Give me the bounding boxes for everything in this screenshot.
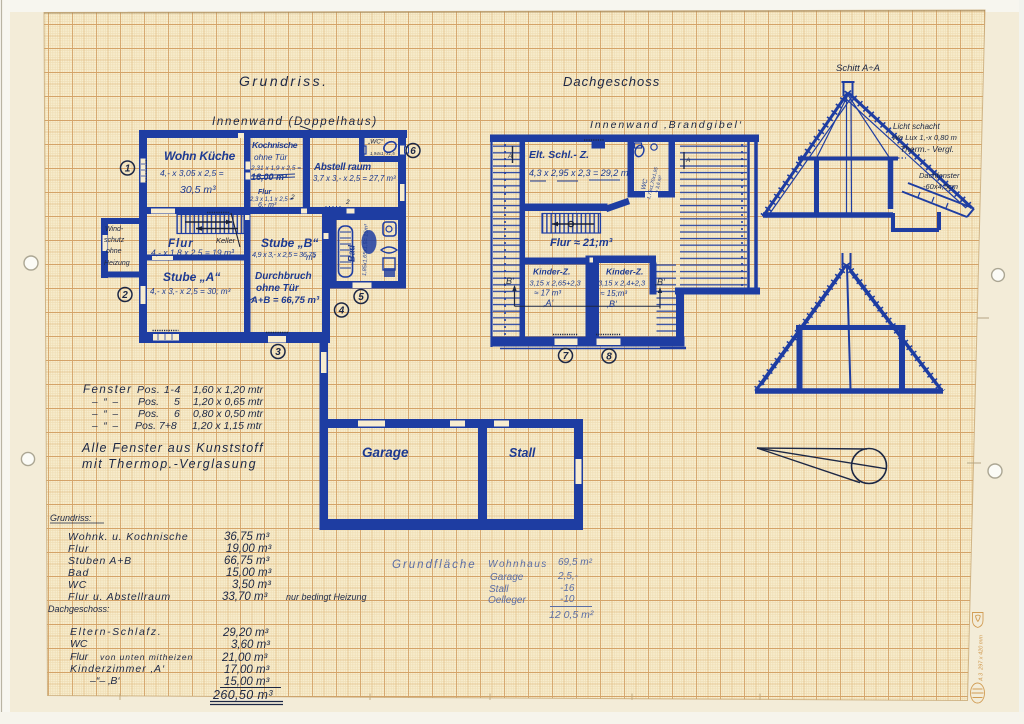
svg-text:Oelleger: Oelleger <box>488 595 526 606</box>
svg-text:4,- x 3,05 x 2,5 =: 4,- x 3,05 x 2,5 = <box>160 168 224 178</box>
svg-text:12 0,5 m²: 12 0,5 m² <box>549 609 594 621</box>
svg-text:Alle Fenster aus Kunststoff: Alle Fenster aus Kunststoff <box>81 441 264 455</box>
svg-text:ohne Tür: ohne Tür <box>256 283 300 294</box>
svg-text:15,00 m³: 15,00 m³ <box>226 567 273 579</box>
svg-text:66,75 m³: 66,75 m³ <box>224 555 271 567</box>
svg-text:17,00 m³: 17,00 m³ <box>224 664 271 676</box>
svg-text:Durchbruch: Durchbruch <box>255 271 312 282</box>
svg-text:Keller: Keller <box>216 236 236 245</box>
svg-text:69,5 m²: 69,5 m² <box>558 557 593 568</box>
svg-text:5: 5 <box>358 292 364 303</box>
svg-text:3,50 m³: 3,50 m³ <box>232 579 272 591</box>
svg-text:1,94x1,-x1,5: 1,94x1,-x1,5 <box>370 151 395 156</box>
svg-text:A: A <box>685 157 690 164</box>
svg-text:2: 2 <box>121 290 128 301</box>
svg-text:Garage: Garage <box>362 445 409 460</box>
svg-text:-10: -10 <box>560 594 575 605</box>
svg-text:‚A‘: ‚A‘ <box>543 298 555 308</box>
svg-text:Wind-: Wind- <box>105 226 124 233</box>
svg-text:Wohn Küche: Wohn Küche <box>164 149 236 163</box>
svg-text:‚B‘: ‚B‘ <box>606 299 618 309</box>
svg-text:–“– ‚B‘: –“– ‚B‘ <box>89 675 120 687</box>
svg-text:33,70 m³: 33,70 m³ <box>222 591 269 603</box>
svg-text:7: 7 <box>563 351 569 362</box>
svg-text:A 3 297 x 420 mm: A 3 297 x 420 mm <box>979 635 985 682</box>
svg-text:We Lux 1,-x 0,80 m: We Lux 1,-x 0,80 m <box>892 133 957 142</box>
svg-text:Therm.- Vergl.: Therm.- Vergl. <box>900 144 954 154</box>
svg-text:6,- m³: 6,- m³ <box>258 202 277 209</box>
svg-text:Stuben A+B: Stuben A+B <box>68 555 132 567</box>
svg-text:Eltern-Schlafz.: Eltern-Schlafz. <box>70 626 162 638</box>
svg-text:Kinder-Z.: Kinder-Z. <box>533 267 570 277</box>
svg-text:Kinder-Z.: Kinder-Z. <box>606 267 643 277</box>
svg-text:260,50 m³: 260,50 m³ <box>212 688 273 702</box>
svg-text:Dachgeschoss: Dachgeschoss <box>563 74 660 89</box>
svg-text:WC: WC <box>70 638 88 650</box>
svg-text:Grundriss.: Grundriss. <box>239 73 329 89</box>
svg-text:WC: WC <box>68 579 87 591</box>
svg-text:Grundriss:: Grundriss: <box>50 513 92 523</box>
svg-text:Pos. 7+8: Pos. 7+8 <box>135 420 177 432</box>
svg-text:Pos.: Pos. <box>138 408 159 420</box>
svg-text:Flur: Flur <box>70 651 89 663</box>
svg-text:Abstell raum: Abstell raum <box>313 162 371 173</box>
svg-text:3: 3 <box>275 347 281 358</box>
svg-text:Grundfläche: Grundfläche <box>392 559 477 571</box>
svg-text:Flur ≈ 21;m³: Flur ≈ 21;m³ <box>550 237 613 249</box>
svg-text:– “ –: – “ – <box>91 397 120 408</box>
svg-text:Innenwand ‚Brandgibel‘: Innenwand ‚Brandgibel‘ <box>590 119 743 131</box>
svg-text:‚B‘: ‚B‘ <box>654 277 666 287</box>
svg-text:1: 1 <box>125 163 131 174</box>
svg-text:-60x4,5cm: -60x4,5cm <box>923 182 958 191</box>
svg-text:schutz: schutz <box>104 237 125 244</box>
svg-text:Bad: Bad <box>347 244 357 262</box>
svg-text:Stube „B“: Stube „B“ <box>261 236 318 250</box>
svg-text:Schitt A÷A: Schitt A÷A <box>836 63 880 74</box>
svg-text:‚B‘: ‚B‘ <box>503 276 515 286</box>
svg-text:Pos.: Pos. <box>138 396 159 408</box>
svg-text:6: 6 <box>410 146 416 157</box>
svg-text:Flur: Flur <box>258 189 272 196</box>
svg-text:0,80 x 0,50 mtr: 0,80 x 0,50 mtr <box>193 408 264 420</box>
svg-text:≈ 15;m³: ≈ 15;m³ <box>600 289 627 298</box>
svg-text:36,75 m³: 36,75 m³ <box>224 531 271 543</box>
svg-text:Stube „A“: Stube „A“ <box>163 270 220 284</box>
svg-text:Bad: Bad <box>68 567 89 579</box>
svg-text:4: 4 <box>338 305 345 316</box>
svg-text:3,60 m³: 3,60 m³ <box>231 639 271 651</box>
svg-text:4,- x 3,- x 2,5 = 30; m³: 4,- x 3,- x 2,5 = 30; m³ <box>150 287 231 296</box>
svg-text:ohne Tür: ohne Tür <box>254 152 288 162</box>
svg-text:– “ –: – “ – <box>91 421 120 432</box>
svg-text:15,00 m³: 15,00 m³ <box>224 676 271 688</box>
svg-text:m³: m³ <box>306 253 316 262</box>
svg-text:1,20 x 0,65 mtr: 1,20 x 0,65 mtr <box>193 396 264 408</box>
svg-text:2,31 x 1,9 x 2,5 =: 2,31 x 1,9 x 2,5 = <box>250 165 301 172</box>
svg-text:Licht schacht: Licht schacht <box>893 122 940 131</box>
svg-text:Stall: Stall <box>489 584 509 595</box>
svg-text:-16: -16 <box>560 583 575 594</box>
svg-text:A+B = 66,75 m³: A+B = 66,75 m³ <box>250 295 320 306</box>
svg-text:≈ 17 m³: ≈ 17 m³ <box>534 289 561 298</box>
svg-text:Dachfenster: Dachfenster <box>919 171 960 180</box>
svg-text:Wohnk. u. Kochnische: Wohnk. u. Kochnische <box>68 531 188 543</box>
svg-text:nur bedingt Heizung: nur bedingt Heizung <box>286 592 367 602</box>
svg-text:mit Thermop.-Verglasung: mit Thermop.-Verglasung <box>82 457 257 471</box>
svg-text:16,00 m³: 16,00 m³ <box>251 172 288 182</box>
svg-text:ohne: ohne <box>106 248 122 255</box>
svg-text:Kinderzimmer ‚A‘: Kinderzimmer ‚A‘ <box>70 663 165 675</box>
svg-text:Flur u. Abstellraum: Flur u. Abstellraum <box>68 591 171 603</box>
svg-text:2: 2 <box>345 199 350 206</box>
svg-text:Elt. Schl.- Z.: Elt. Schl.- Z. <box>529 149 589 161</box>
svg-text:Pos. 1-4: Pos. 1-4 <box>137 384 181 396</box>
svg-text:A: A <box>507 153 512 160</box>
svg-text:1,60 x 1,20 mtr: 1,60 x 1,20 mtr <box>193 384 264 396</box>
svg-text:2: 2 <box>290 194 295 201</box>
svg-text:3,15 x 2,4+2,3: 3,15 x 2,4+2,3 <box>598 279 646 288</box>
svg-text:4,3 x 2,95 x 2,3 = 29,2 m³: 4,3 x 2,95 x 2,3 = 29,2 m³ <box>529 168 632 178</box>
svg-text:30,5 m³: 30,5 m³ <box>180 184 216 196</box>
svg-text:Dachgeschoss:: Dachgeschoss: <box>48 604 110 614</box>
svg-text:Stall: Stall <box>509 446 536 460</box>
svg-text:Innenwand (Doppelhaus): Innenwand (Doppelhaus) <box>212 116 378 128</box>
svg-text:21,00 m³: 21,00 m³ <box>221 652 269 664</box>
svg-text:von unten mitheizen: von unten mitheizen <box>100 652 193 662</box>
svg-text:Garage: Garage <box>490 572 524 583</box>
svg-text:Flur: Flur <box>68 543 89 555</box>
svg-text:1,20 x 1,15 mtr: 1,20 x 1,15 mtr <box>192 420 263 432</box>
svg-text:8: 8 <box>606 351 612 362</box>
svg-text:„WC“: „WC“ <box>367 139 384 146</box>
svg-text:3,7 x 3,- x 2,5 = 27,7 m³: 3,7 x 3,- x 2,5 = 27,7 m³ <box>313 174 396 183</box>
svg-text:Wohnhaus: Wohnhaus <box>488 559 548 570</box>
svg-text:Fenster: Fenster <box>83 384 133 396</box>
svg-text:2,5,-: 2,5,- <box>557 571 579 582</box>
svg-text:– “ –: – “ – <box>91 409 120 420</box>
svg-text:5: 5 <box>174 396 180 408</box>
svg-text:19,00 m³: 19,00 m³ <box>226 543 273 555</box>
svg-text:Kochnische: Kochnische <box>252 140 298 150</box>
svg-text:4,- x 1,8 x 2,5 = 19 m³: 4,- x 1,8 x 2,5 = 19 m³ <box>151 248 235 258</box>
svg-text:3,15 x 2,65+2,3: 3,15 x 2,65+2,3 <box>530 279 582 288</box>
svg-text:6: 6 <box>174 408 180 420</box>
svg-text:29,20 m³: 29,20 m³ <box>222 627 270 639</box>
svg-text:Heizung: Heizung <box>104 260 130 267</box>
